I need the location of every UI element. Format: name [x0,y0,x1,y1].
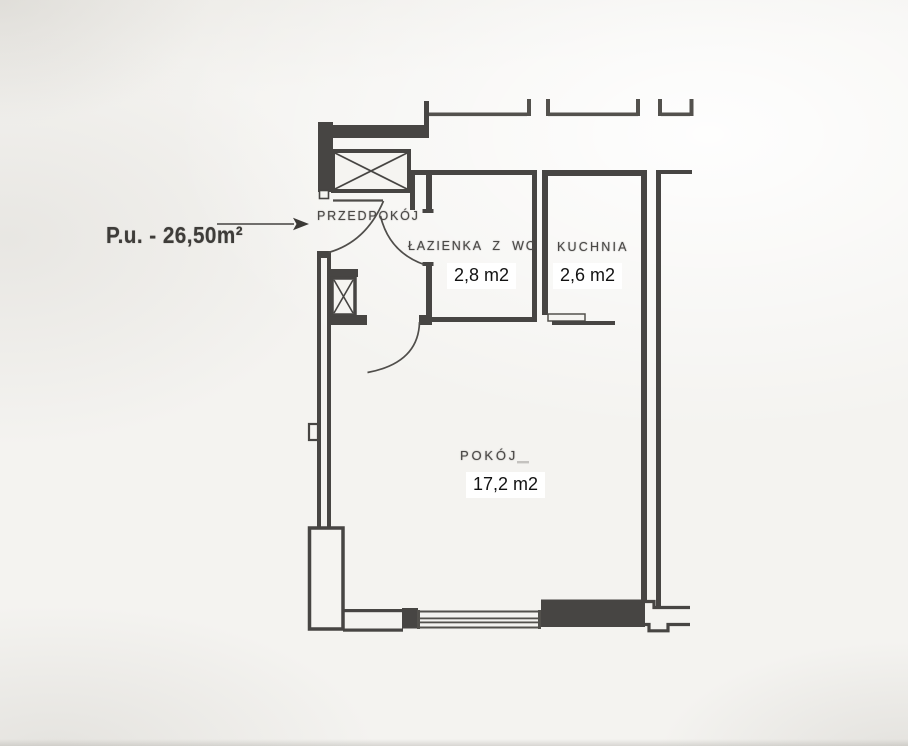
room-area-pokoj: 17,2 m2 [466,472,545,498]
room-label-przedpokoj: PRZEDPOKÓJ [317,209,420,223]
small-shaft [332,278,355,315]
kitchen-counter [548,314,615,325]
room-label-kuchnia: KUCHNIA [557,240,629,254]
entry-wall-foot [320,191,329,199]
room-label-pokoj: POKÓJ [460,448,518,463]
corridor-wall-lines [429,99,694,116]
floorplan-scan: P.u. - 26,50m² PRZEDPOKÓJ ŁAZIENKA Z WC … [0,0,908,746]
room-door-arc [368,322,420,373]
room-area-kuchnia: 2,6 m2 [553,263,622,289]
wall-bump [309,424,318,440]
bottom-right-wall-jogs [645,602,690,631]
room-label-lazienka: ŁAZIENKA Z WC [408,239,537,253]
wall-pilaster [310,528,344,629]
scan-artifact-dash [517,461,529,463]
total-area-label: P.u. - 26,50m² [106,222,243,249]
room-area-lazienka: 2,8 m2 [447,263,516,289]
window [417,610,541,629]
floorplan-drawing [0,0,908,746]
large-shaft [333,151,409,191]
